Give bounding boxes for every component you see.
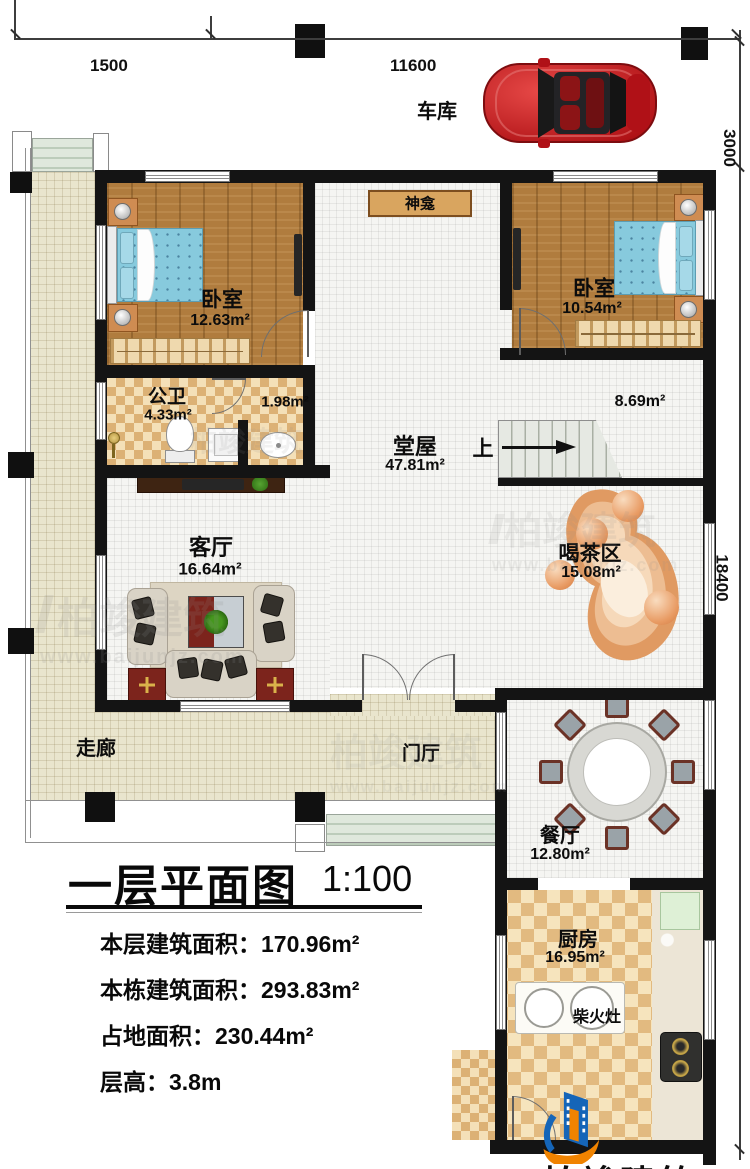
title-underline-thin [66,912,422,913]
column [85,792,115,822]
dim-label-1500: 1500 [90,56,128,76]
porch-edge-line [25,148,26,843]
window [145,171,230,182]
watermark-text: 柏竣建筑 [504,511,656,553]
brand-name: 柏竣建筑 [542,1164,729,1169]
tv-icon [182,479,244,490]
window [96,382,106,440]
hall-name: 堂屋 [393,436,437,458]
column [8,628,34,654]
column [8,452,34,478]
window [704,940,715,1040]
wall [507,688,703,700]
lamp-icon [114,309,131,326]
lamp-icon [680,301,697,318]
pillow [679,226,693,257]
living-name: 客厅 [189,537,233,559]
bed-blanket [137,229,155,301]
stat-building-area: 本栋建筑面积：293.83m² [100,971,359,1005]
window [180,701,290,712]
kitchen-area: 16.95m² [545,950,605,966]
watermark-url: www.baijunjz.com [40,646,245,669]
watermark: 柏竣建筑 [190,420,302,460]
vanity-area: 1.98m² [261,394,309,409]
dining-name: 餐厅 [540,826,580,846]
wood-stove-burner [524,988,564,1028]
lamp-icon [680,199,697,216]
tv-icon [513,228,521,290]
entry-steps-top [32,138,93,172]
stat-land-area: 占地面积：230.44m² [100,1017,313,1051]
window [704,700,715,790]
pillow [120,267,134,299]
sheet-scale: 1:100 [322,858,412,900]
stairs-up-label: 上 [473,438,494,459]
lamp-icon [114,203,131,220]
door-leaf [307,310,309,357]
bed-blanket [658,222,676,294]
axis-marker [295,24,325,58]
stairs-arrow-icon [556,440,576,454]
stairs-arrow-line [502,446,556,449]
wood-stove-label: 柴火灶 [573,1010,621,1026]
wall [498,478,712,486]
wardrobe [575,320,701,347]
dining-chair [671,760,695,784]
cutting-board [660,892,700,930]
burner-icon [672,1038,689,1055]
wall [630,878,703,890]
side-table [256,668,294,701]
door-leaf [512,1096,514,1140]
porch-column [93,133,109,172]
shower-stem [112,444,115,458]
watermark-url: www.baijunjz.com [330,777,509,797]
bedroom-right-name: 卧室 [573,278,615,299]
dimension-line-right [739,30,741,1160]
window [704,210,715,300]
tv-icon [294,234,302,296]
wall [303,183,315,311]
door-leaf [453,654,455,700]
dim-label-11600: 11600 [390,56,436,76]
corridor-floor-left [30,172,95,800]
window [553,171,658,182]
door-leaf [362,654,364,700]
shower-head-icon [108,432,120,444]
wall [500,183,512,310]
back-porch-floor [452,1050,495,1140]
watermark-url: www.baijunjz.com [492,555,679,576]
pillow [679,260,693,291]
watermark: 柏竣建筑 www.baijunjz.com [492,500,679,576]
bed-headboard [107,226,117,304]
hall-area: 47.81m² [385,458,445,474]
dim-label-3000: 3000 [719,129,739,167]
shrine-label: 神龛 [405,196,435,211]
bedroom-left-name: 卧室 [201,289,243,310]
hallway-area: 8.69m² [615,394,666,410]
brand-logo-icon [538,1086,612,1164]
dimension-line-top [14,38,740,40]
porch-edge-line [30,148,31,838]
dining-table-top [583,738,651,806]
porch-edge-line [25,842,505,843]
living-area: 16.64m² [178,560,241,577]
window [96,225,106,320]
car-top-view-icon [480,56,660,150]
wardrobe [110,338,250,364]
sofa-pillow [262,620,285,643]
porch-column-base [295,824,325,852]
bonsai-icon [252,477,268,491]
bathroom-name: 公卫 [148,387,186,406]
stat-floor-height: 层高：3.8m [100,1063,221,1097]
window [496,935,506,1030]
dining-chair [539,760,563,784]
dim-label-18400: 18400 [712,554,732,601]
garage-label: 车库 [417,102,457,122]
bathroom-area: 4.33m² [144,407,192,422]
tea-stool [644,590,679,625]
title-underline [66,905,422,909]
bedroom-right-area: 10.54m² [562,301,622,317]
axis-marker [681,27,708,60]
watermark-text: 柏竣建筑 [190,426,302,457]
brand-logo: 柏竣建筑 www.baijunjz.com [538,1086,750,1169]
porch-column [12,131,32,172]
watermark: 柏竣建筑 www.baijunjz.com [40,585,245,669]
watermark: 柏竣建筑 www.baijunjz.com [330,722,509,797]
corridor-name: 走廊 [76,739,116,759]
wall [95,465,330,478]
stat-floor-area: 本层建筑面积：170.96m² [100,925,359,959]
pillow [120,232,134,264]
bedroom-left-area: 12.63m² [190,313,250,329]
wall [95,365,315,378]
column [295,792,325,822]
side-table [128,668,166,701]
watermark-text: 柏竣建筑 [57,595,225,642]
watermark-text: 柏竣建筑 [330,733,482,775]
dining-chair [605,826,629,850]
dining-area: 12.80m² [530,847,590,863]
floor-plan-sheet: 1500 11600 3000 18400 车库 [0,0,750,1169]
door-leaf [519,308,521,355]
kitchen-name: 厨房 [558,930,598,950]
door-leaf [212,378,246,380]
column [10,172,32,193]
burner-icon [672,1060,689,1077]
